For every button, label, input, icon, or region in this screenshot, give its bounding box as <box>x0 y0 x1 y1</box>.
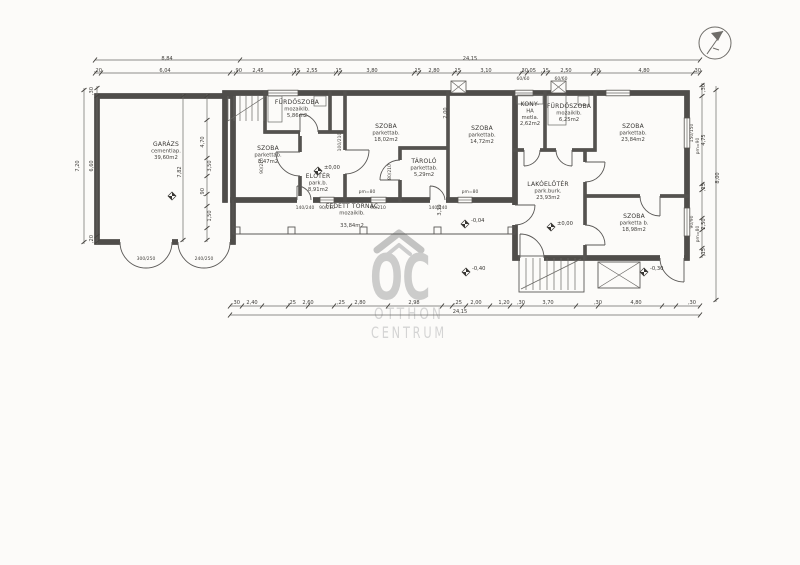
dimension-label: ,30 <box>594 300 602 306</box>
room-label-garage: GARÁZS <box>153 141 179 148</box>
scanned-floor-plan-page: OC OTTHON CENTRUM GARÁZScementlap.39,60m… <box>0 0 800 565</box>
room-label-bathroom-2: 6,25m2 <box>559 117 579 123</box>
dimension-label: 2,80 <box>354 300 365 306</box>
level-value-label: -0,40 <box>472 266 485 272</box>
dimension-label: ,30 <box>520 68 528 74</box>
dimension-label: 8,84 <box>161 56 172 62</box>
room-label-room-5: parketta b. <box>619 220 648 226</box>
dimension-label: 4,80 <box>638 68 649 74</box>
wall-opening <box>341 150 349 174</box>
room-label-foyer: park.b. <box>309 180 328 186</box>
room-label-room-1: parkettab. <box>254 152 282 158</box>
room-label-entry-hall: 23,93m2 <box>536 195 560 201</box>
room-label-room-1: SZOBA <box>257 145 280 152</box>
opening-size-label: 90/210 <box>319 205 335 211</box>
chimney <box>551 81 566 93</box>
room-label-room-3: SZOBA <box>471 125 494 132</box>
dimension-label: 2,98 <box>408 300 419 306</box>
dimension-label: 2,50 <box>560 68 571 74</box>
opening-size-label: pm=80 <box>462 189 479 195</box>
room-label-entry-hall: park.burk. <box>534 188 562 194</box>
dimension-label: ,30 <box>693 68 701 74</box>
room-label-room-3: parkettab. <box>468 132 496 138</box>
dimension-label: ,15 <box>292 68 300 74</box>
room-label-bathroom-1: mozaiklb. <box>284 106 310 112</box>
dimension-label: 1,20 <box>498 300 509 306</box>
opening-size-label: 150/150 <box>689 124 695 143</box>
dimension-label: 4,80 <box>630 300 641 306</box>
dimension-label: 6,04 <box>159 68 170 74</box>
window <box>606 90 630 96</box>
chimney <box>451 81 466 93</box>
wall-opening <box>396 160 404 180</box>
room-label-room-4: 23,84m2 <box>621 137 645 143</box>
dimension-label: ,30 <box>701 84 707 92</box>
room-label-room-4: parkettab. <box>619 130 647 136</box>
room-label-storage: 5,29m2 <box>414 172 434 178</box>
room-label-kitchen: HA <box>526 108 534 114</box>
opening-size-label: 140/240 <box>296 205 315 211</box>
dimension-label: 8,00 <box>715 172 721 183</box>
dimension-label: 24,15 <box>453 309 468 315</box>
room-label-porch: 33,84m2 <box>340 223 364 229</box>
dimension-label: ,25 <box>288 300 296 306</box>
dimension-label: 2,80 <box>428 68 439 74</box>
wall-opening <box>300 128 318 136</box>
wall-opening <box>556 146 572 154</box>
dimension-label: ,90 <box>200 188 206 196</box>
room-label-room-3: 14,72m2 <box>470 139 494 145</box>
dimension-label: ,30 <box>89 87 95 95</box>
dimension-label: ,30 <box>232 300 240 306</box>
room-label-bathroom-2: mozaiklb. <box>556 110 582 116</box>
dimension-label: ,30 <box>592 68 600 74</box>
room-label-room-2: 18,02m2 <box>374 137 398 143</box>
window <box>684 208 690 236</box>
dimension-label: 2,45 <box>252 68 263 74</box>
opening-size-label: 140/240 <box>429 205 448 211</box>
dimension-label: 7,20 <box>75 160 81 171</box>
dimension-label: 2,60 <box>302 300 313 306</box>
room-label-room-4: SZOBA <box>622 123 645 130</box>
dimension-label: 3,80 <box>366 68 377 74</box>
window <box>371 197 386 203</box>
level-value-label: ±0,00 <box>557 221 573 227</box>
window <box>268 90 298 96</box>
dimension-label: 3,50 <box>207 160 213 171</box>
dimension-label: ,15 <box>413 68 421 74</box>
wall-opening <box>120 238 172 246</box>
dimension-label: ,15 <box>541 68 549 74</box>
opening-size-label: 60/60 <box>555 76 568 82</box>
dimension-label: ,15 <box>701 183 707 191</box>
room-label-kitchen: metla. <box>522 115 539 121</box>
opening-size-label: pm=80 <box>359 189 376 195</box>
dimension-label: ,15 <box>701 248 707 256</box>
watermark-word-1: OTTHON <box>374 304 444 323</box>
dimension-label: ,30 <box>517 300 525 306</box>
window <box>320 197 334 203</box>
dimension-label: 2,00 <box>443 107 449 118</box>
dimension-label: 2,00 <box>470 300 481 306</box>
dimension-label: ,20 <box>94 68 102 74</box>
opening-size-label: 90/210 <box>370 205 386 211</box>
room-label-garage: 39,60m2 <box>154 155 178 161</box>
dimension-label: ,05 <box>528 68 536 74</box>
room-label-bathroom-2: FÜRDŐSZOBA <box>547 103 592 110</box>
dimension-label: 24,15 <box>463 56 478 62</box>
dimension-label: 2,40 <box>246 300 257 306</box>
opening-size-label: pm=80 <box>695 226 701 243</box>
opening-size-label: 100/210 <box>337 133 343 152</box>
room-label-foyer: 8,91m2 <box>308 187 328 193</box>
dimension-label: ,90 <box>234 68 242 74</box>
wall-opening <box>660 254 684 262</box>
window <box>458 197 472 203</box>
room-label-bathroom-1: FÜRDŐSZOBA <box>275 99 320 106</box>
room-label-entry-hall: LAKÓELŐTÉR <box>527 180 568 188</box>
room-label-kitchen: 2,62m2 <box>520 121 540 127</box>
room-label-room-2: parkettab. <box>372 130 400 136</box>
dimension-label: ,25 <box>337 300 345 306</box>
dimension-label: 2,50 <box>701 218 707 229</box>
dimension-label: ,15 <box>453 68 461 74</box>
opening-size-label: 240/250 <box>195 256 214 262</box>
dimension-label: 4,70 <box>200 136 206 147</box>
room-label-kitchen: KONY- <box>521 101 540 108</box>
dimension-label: 1,50 <box>207 210 213 221</box>
room-label-garage: cementlap. <box>151 148 181 154</box>
room-label-storage: parkettab. <box>410 165 438 171</box>
room-label-room-5: 18,98m2 <box>622 227 646 233</box>
level-value-label: -0,30 <box>650 266 663 272</box>
dimension-label: 3,70 <box>542 300 553 306</box>
room-label-bathroom-1: 5,86m2 <box>287 113 307 119</box>
floor-plan-drawing: OC OTTHON CENTRUM GARÁZScementlap.39,60m… <box>0 0 800 565</box>
wall-opening <box>430 196 446 204</box>
dimension-label: ,20 <box>89 235 95 243</box>
wall-opening <box>520 254 544 262</box>
dimension-label: ,30 <box>688 300 696 306</box>
level-value-label: -0,04 <box>471 218 485 224</box>
dimension-label: 4,75 <box>701 134 707 145</box>
room-label-room-5: SZOBA <box>623 213 646 220</box>
level-value-label: ±0,00 <box>324 165 340 171</box>
wall-opening <box>581 225 589 245</box>
window <box>684 118 690 148</box>
opening-size-label: pm=90 <box>695 138 701 155</box>
dimension-label: ,15 <box>334 68 342 74</box>
dimension-label: 2,55 <box>306 68 317 74</box>
dimension-label: 3,10 <box>480 68 491 74</box>
opening-size-label: 80/210 <box>387 164 393 180</box>
opening-size-label: 90/210 <box>259 158 265 174</box>
opening-size-label: 300/250 <box>137 256 156 262</box>
dimension-label: ,25 <box>454 300 462 306</box>
room-label-porch: mozaiklb. <box>339 210 365 216</box>
opening-size-label: 60/60 <box>517 76 530 82</box>
wall-opening <box>581 162 589 182</box>
watermark-word-2: CENTRUM <box>371 323 447 342</box>
wall-opening <box>524 146 540 154</box>
room-label-room-2: SZOBA <box>375 123 398 130</box>
wall-opening <box>511 205 519 225</box>
room-label-storage: TÁROLÓ <box>410 158 436 165</box>
dimension-label: 6,60 <box>89 160 95 171</box>
opening-size-label: 90/90 <box>689 215 695 228</box>
wall-opening <box>178 238 230 246</box>
wall-opening <box>640 192 660 200</box>
wall-opening <box>296 152 304 176</box>
dimension-label: 7,82 <box>177 166 183 177</box>
